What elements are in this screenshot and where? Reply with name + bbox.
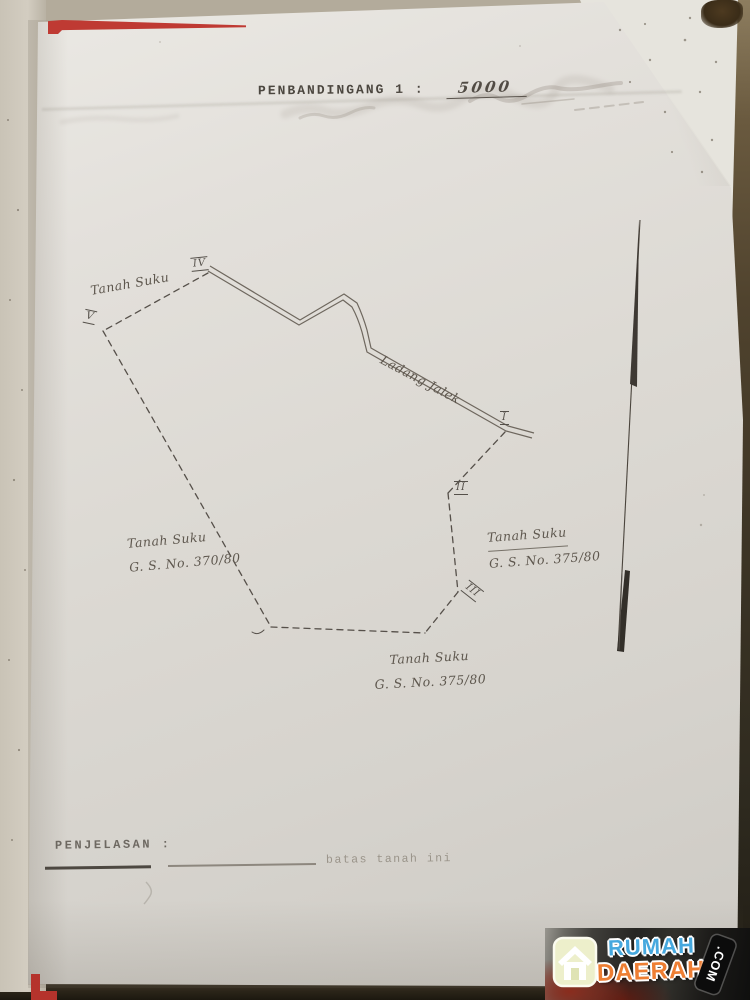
scale-heading: PENBANDINGANG 1 : 5000 (258, 78, 528, 101)
watermark-banner: RUMAH DAERAH .COM (545, 928, 750, 1000)
photo-of-land-survey-document: { "document": { "scale_heading": { "labe… (0, 0, 750, 1000)
area-label-left: Tanah Suku G. S. No. 370/80 (126, 522, 241, 579)
legend-heading: PENJELASAN : (55, 837, 172, 853)
watermark-com-text: .COM (703, 945, 729, 984)
area-label-bottom: Tanah Suku G. S. No. 375/80 (373, 643, 487, 696)
watermark-word-daerah: DAERAH (597, 956, 707, 988)
vertex-label-4: IV (190, 256, 208, 271)
faint-scribble (144, 882, 151, 904)
parcel-boundary-dashed (103, 273, 505, 634)
road-lines (208, 266, 534, 438)
area-label-right: Tanah Suku G. S. No. 375/80 (486, 518, 601, 575)
scale-label: PENBANDINGANG 1 : (258, 82, 425, 99)
scale-value-handwritten: 5000 (447, 77, 530, 99)
house-icon (552, 934, 598, 990)
north-arrow-icon (617, 220, 640, 652)
vertex-label-1: I (500, 411, 509, 425)
vertex-label-2: II (454, 481, 468, 495)
paper-specks (7, 17, 717, 841)
legend-boundary-label: batas tanah ini (326, 852, 452, 867)
